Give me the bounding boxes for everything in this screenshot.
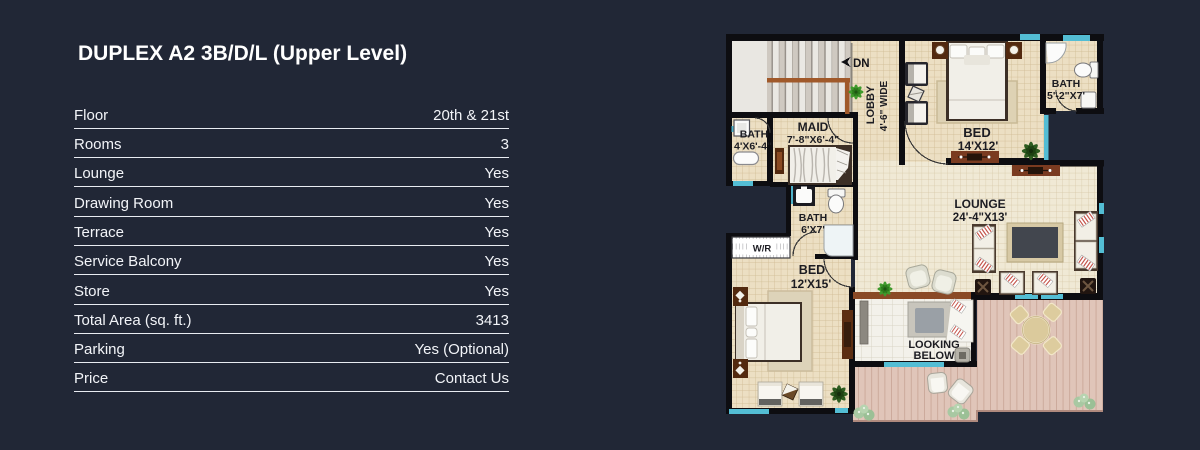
svg-text:7'-8"X6'-4": 7'-8"X6'-4" bbox=[787, 134, 839, 146]
svg-text:BED: BED bbox=[799, 263, 825, 277]
svg-text:12'X15': 12'X15' bbox=[791, 277, 832, 291]
svg-text:BELOW: BELOW bbox=[914, 350, 956, 362]
svg-text:BED: BED bbox=[963, 125, 990, 140]
svg-text:DN: DN bbox=[853, 58, 870, 70]
svg-text:BATH: BATH bbox=[799, 212, 827, 224]
svg-text:W/R: W/R bbox=[753, 244, 772, 255]
svg-text:4'X6'-4": 4'X6'-4" bbox=[734, 141, 772, 153]
svg-text:14'X12': 14'X12' bbox=[958, 139, 999, 153]
svg-text:5'-2"X7': 5'-2"X7' bbox=[1047, 90, 1085, 102]
svg-text:LOBBY: LOBBY bbox=[865, 85, 877, 124]
svg-text:6'X7': 6'X7' bbox=[801, 224, 825, 236]
svg-text:BATH: BATH bbox=[740, 129, 768, 141]
svg-text:4'-6" WIDE: 4'-6" WIDE bbox=[879, 80, 890, 131]
svg-text:24'-4"X13': 24'-4"X13' bbox=[953, 212, 1008, 224]
svg-text:MAID: MAID bbox=[798, 120, 829, 134]
svg-text:BATH: BATH bbox=[1052, 78, 1080, 90]
svg-text:LOUNGE: LOUNGE bbox=[954, 197, 1005, 211]
